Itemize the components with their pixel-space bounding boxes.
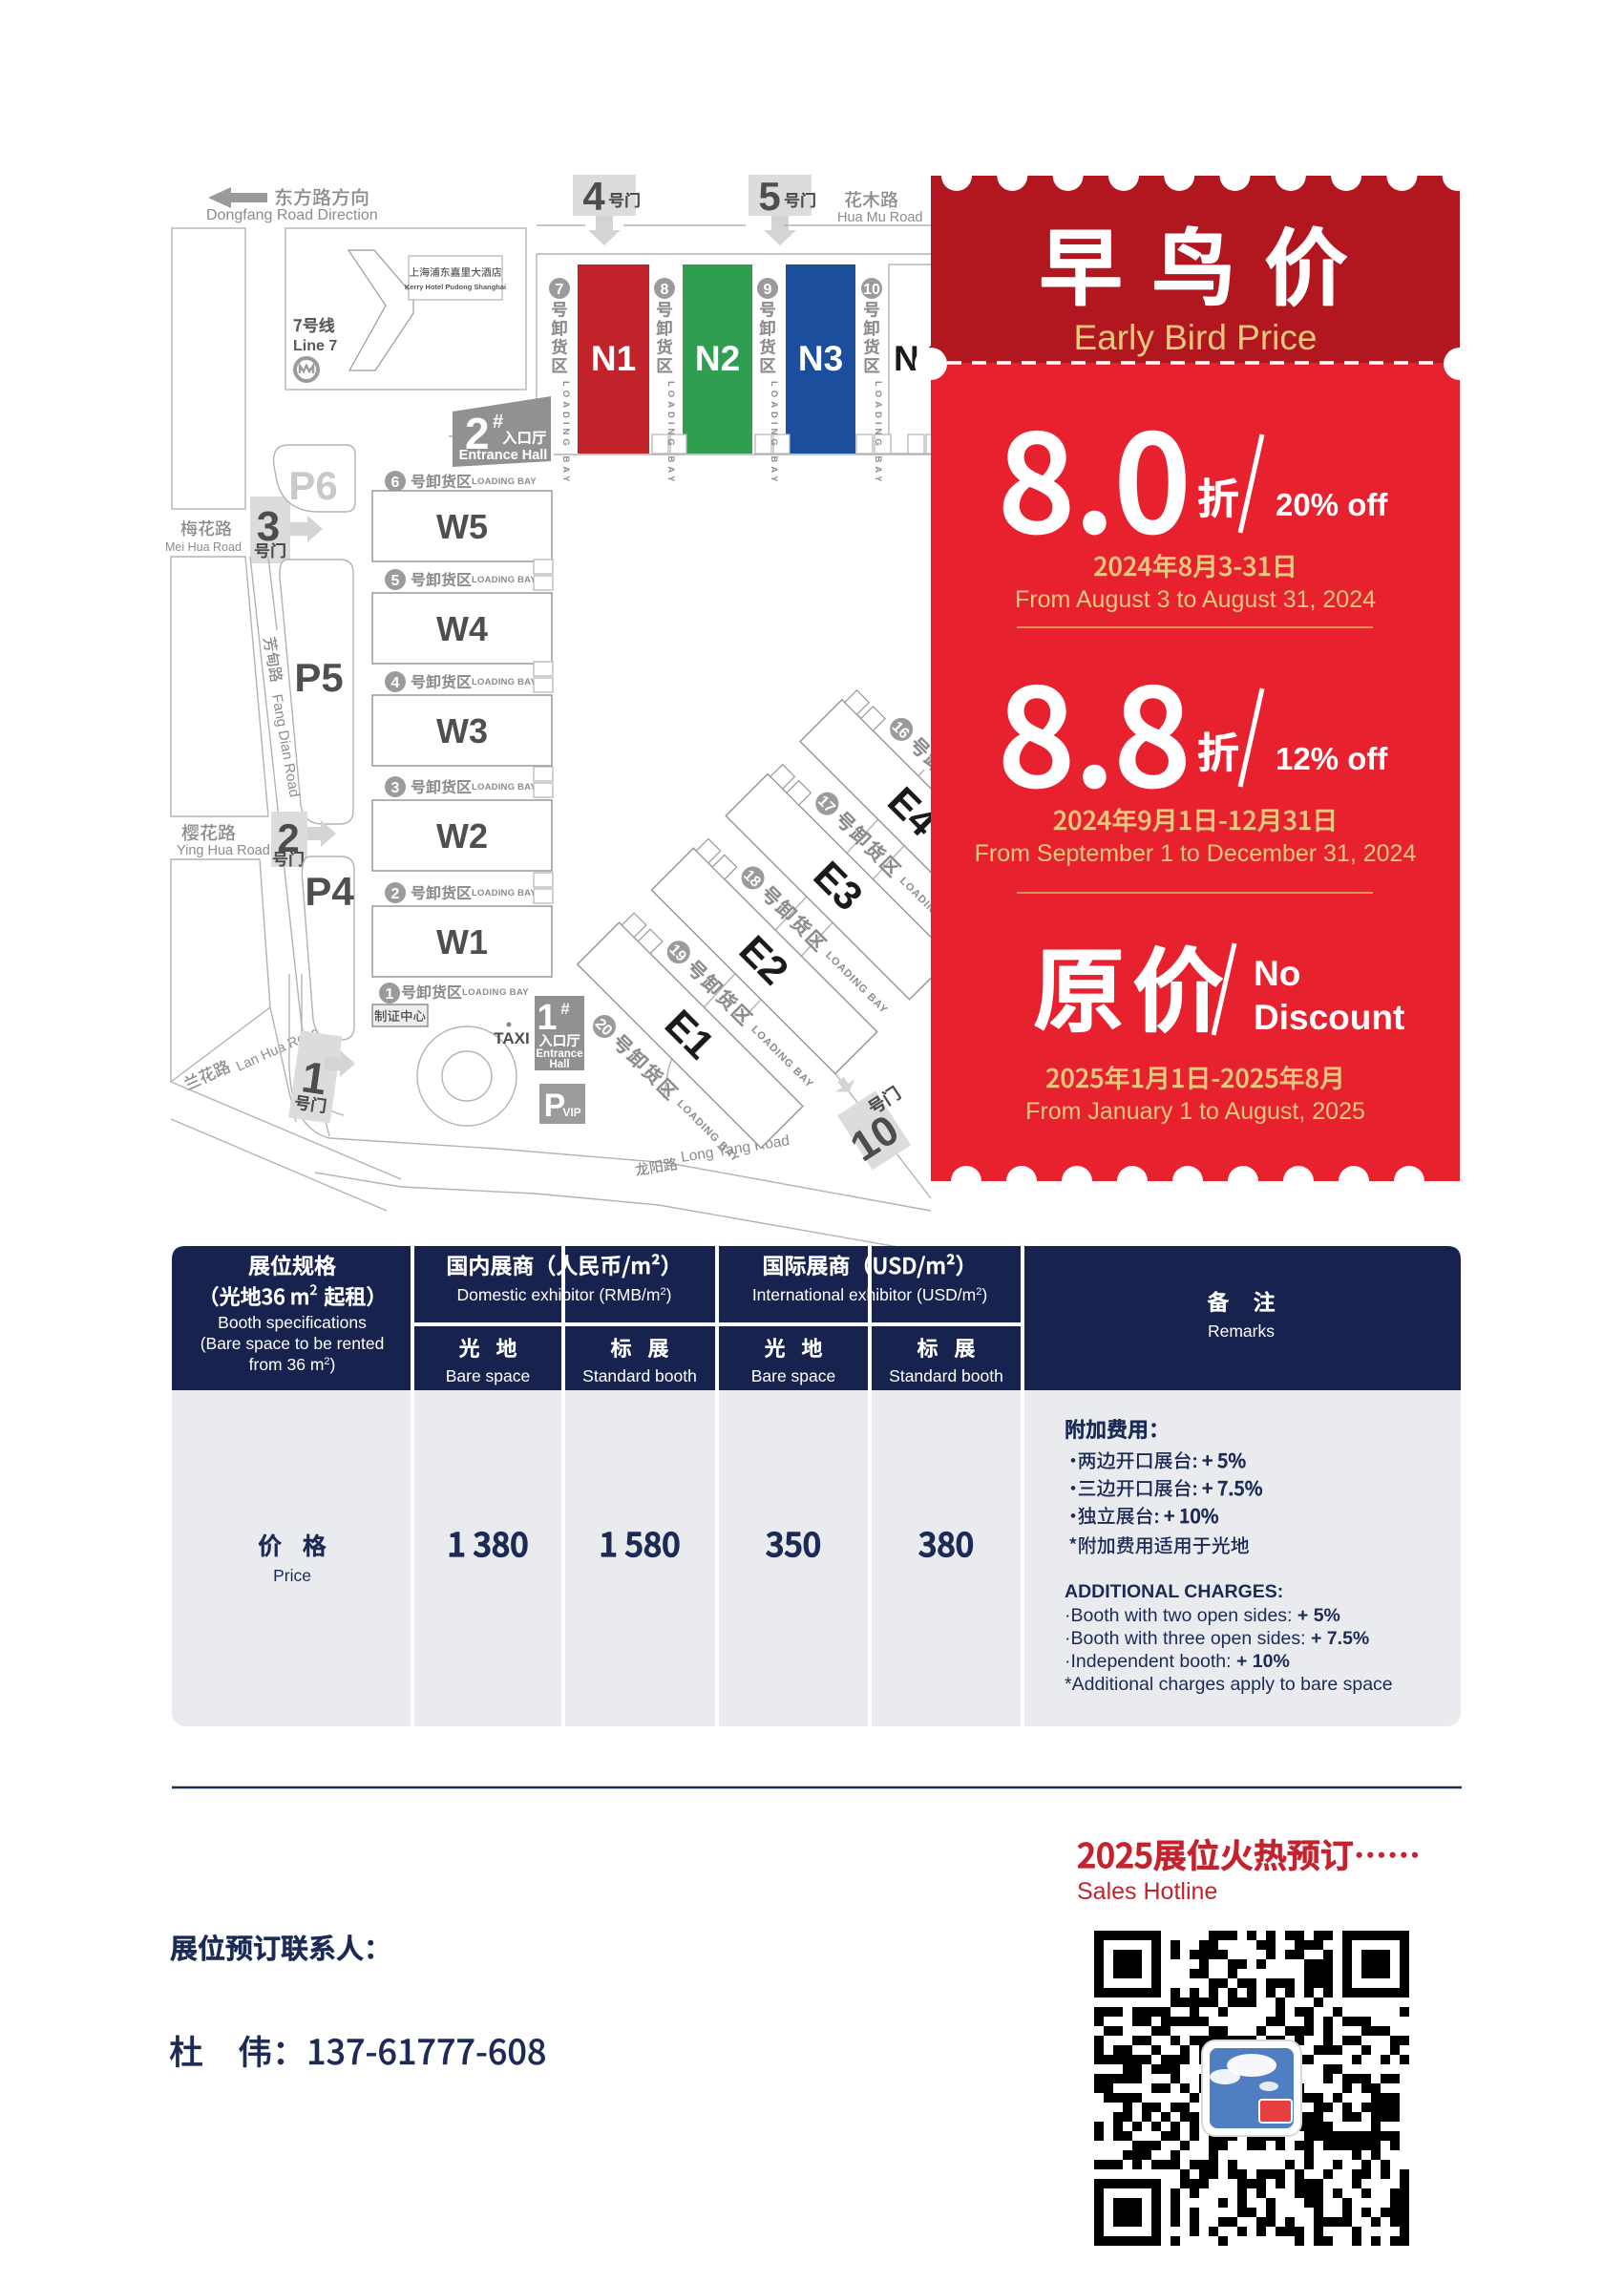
svg-text:Line 7: Line 7	[293, 338, 337, 354]
svg-text:Discount: Discount	[1254, 998, 1404, 1037]
svg-text:*Additional charges apply to b: *Additional charges apply to bare space	[1065, 1674, 1393, 1695]
svg-text:N1: N1	[591, 339, 636, 378]
svg-text:1: 1	[537, 998, 557, 1038]
svg-text:Domestic exhibitor (RMB/m2): Domestic exhibitor (RMB/m2)	[457, 1285, 672, 1304]
svg-text:LOADING BAY: LOADING BAY	[472, 575, 537, 585]
svg-text:Standard booth: Standard booth	[582, 1366, 697, 1385]
svg-text:Dongfang Road Direction: Dongfang Road Direction	[206, 207, 378, 223]
svg-text:8: 8	[661, 282, 669, 298]
svg-text:1: 1	[386, 986, 394, 1003]
svg-text:#: #	[493, 412, 503, 433]
svg-text:N3: N3	[798, 339, 843, 378]
svg-text:W2: W2	[436, 816, 488, 856]
svg-text:LOADING BAY: LOADING BAY	[560, 381, 571, 486]
svg-text:9: 9	[764, 282, 772, 298]
svg-text:7: 7	[556, 282, 564, 298]
svg-text:Bare space: Bare space	[446, 1366, 531, 1385]
svg-text:12% off: 12% off	[1276, 741, 1388, 776]
svg-text:Entrance Hall: Entrance Hall	[459, 448, 548, 463]
svg-text:W4: W4	[436, 609, 488, 648]
svg-text:2: 2	[391, 886, 400, 902]
svg-text:Hua Mu Road: Hua Mu Road	[837, 210, 922, 225]
svg-text:From August 3 to August 31, 20: From August 3 to August 31, 2024	[1015, 586, 1376, 613]
svg-text:LOADING BAY: LOADING BAY	[769, 381, 779, 486]
svg-text:TAXI: TAXI	[494, 1029, 529, 1047]
svg-text:·Booth with two open sides: +: ·Booth with two open sides: + 5%	[1065, 1605, 1340, 1626]
svg-text:3: 3	[257, 503, 280, 550]
svg-text:Remarks: Remarks	[1208, 1321, 1275, 1341]
svg-text:#: #	[560, 1000, 570, 1018]
svg-text:LOADING BAY: LOADING BAY	[472, 888, 537, 898]
svg-text:·Booth with three open sides:: ·Booth with three open sides: + 7.5%	[1065, 1628, 1369, 1649]
svg-text:ADDITIONAL CHARGES:: ADDITIONAL CHARGES:	[1065, 1581, 1283, 1602]
svg-text:Bare space: Bare space	[751, 1366, 836, 1385]
svg-text:P4: P4	[305, 869, 354, 914]
svg-text:LOADING BAY: LOADING BAY	[665, 381, 676, 486]
svg-text:5: 5	[758, 174, 780, 219]
svg-text:W3: W3	[436, 711, 488, 750]
svg-text:W1: W1	[436, 922, 488, 962]
svg-text:5: 5	[391, 573, 400, 589]
svg-text:Price: Price	[273, 1566, 311, 1585]
svg-text:From January 1 to August, 2025: From January 1 to August, 2025	[1025, 1098, 1365, 1125]
svg-text:4: 4	[582, 174, 605, 219]
svg-text:W5: W5	[436, 507, 488, 546]
svg-text:N2: N2	[695, 339, 740, 378]
svg-text:20% off: 20% off	[1276, 487, 1388, 522]
svg-text:Early Bird Price: Early Bird Price	[1074, 318, 1318, 357]
svg-text:Hall: Hall	[549, 1059, 569, 1070]
svg-text:(Bare space to be rented: (Bare space to be rented	[200, 1334, 385, 1353]
svg-text:LOADING BAY: LOADING BAY	[472, 782, 537, 793]
svg-text:from 36 m2): from 36 m2)	[249, 1355, 336, 1374]
svg-text:Sales Hotline: Sales Hotline	[1077, 1878, 1217, 1905]
svg-text:P5: P5	[294, 655, 343, 700]
svg-text:3: 3	[391, 780, 400, 796]
svg-text:Kerry Hotel Pudong Shanghai: Kerry Hotel Pudong Shanghai	[405, 283, 506, 291]
svg-text:International exhibitor (USD/m: International exhibitor (USD/m2)	[752, 1285, 987, 1304]
svg-text:Booth specifications: Booth specifications	[218, 1313, 367, 1332]
svg-text:Standard booth: Standard booth	[889, 1366, 1003, 1385]
svg-text:Ying Hua Road: Ying Hua Road	[177, 843, 270, 858]
svg-text:From September 1 to December 3: From September 1 to December 31, 2024	[975, 840, 1417, 867]
svg-text:LOADING BAY: LOADING BAY	[472, 677, 537, 687]
svg-text:4: 4	[391, 675, 400, 691]
svg-text:LOADING BAY: LOADING BAY	[873, 381, 883, 486]
svg-text:6: 6	[391, 475, 400, 491]
svg-text:·Independent booth: + 10%: ·Independent booth: + 10%	[1065, 1651, 1290, 1672]
svg-text:LOADING BAY: LOADING BAY	[462, 987, 529, 998]
svg-text:10: 10	[863, 282, 880, 298]
svg-text:VIP: VIP	[562, 1106, 580, 1119]
svg-text:No: No	[1254, 954, 1300, 993]
svg-text:Mei Hua Road: Mei Hua Road	[165, 540, 242, 554]
svg-text:P6: P6	[288, 463, 337, 508]
svg-text:LOADING BAY: LOADING BAY	[472, 476, 537, 487]
